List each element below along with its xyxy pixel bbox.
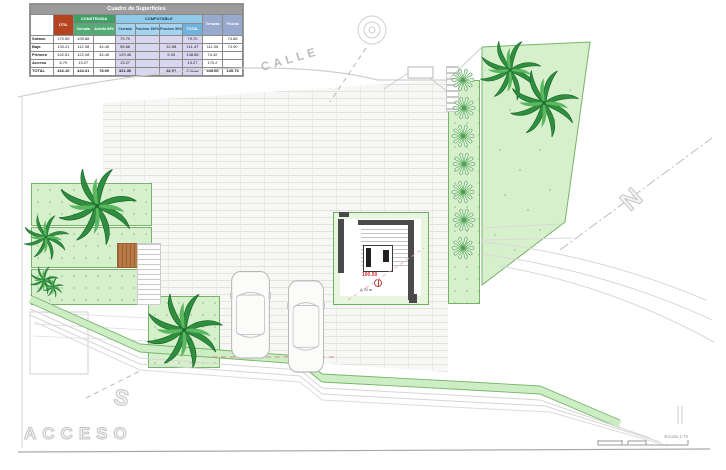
palm-planter-patch: [148, 296, 220, 368]
wall: [339, 212, 349, 217]
table-cell: [135, 60, 160, 68]
sub-header: Abierta 50%: [93, 24, 115, 36]
level-marker-icon: [374, 279, 382, 287]
table-cell: 79.70: [115, 36, 135, 44]
table-cell: 170.55: [53, 36, 73, 44]
table-cell: [93, 60, 115, 68]
row-label: Primera: [31, 52, 54, 60]
level-annotation: 100.50: [362, 272, 377, 278]
table-cell: 195.88: [73, 36, 93, 44]
core-wall: [383, 250, 389, 262]
scale-label: Escala 1:75: [664, 434, 688, 439]
col-header-terrazas: Terrazas: [202, 15, 222, 36]
table-cell: 416.10: [53, 68, 73, 76]
surface-table: Cuadro de Superficies ÚTIL CONSTRUIDA CO…: [30, 4, 243, 76]
wall: [338, 219, 344, 273]
table-cell: [135, 36, 160, 44]
table-cell: [135, 44, 160, 52]
col-header-util: ÚTIL: [53, 15, 73, 36]
table-cell: [135, 52, 160, 60]
table-cell: 74.32: [202, 52, 222, 60]
table-cell: 13.27: [183, 60, 203, 68]
wall: [358, 220, 411, 225]
table-cell: 170.2: [202, 60, 222, 68]
table-cell: 111.47: [183, 44, 203, 52]
table-cell: 9.43: [160, 52, 183, 60]
sub-header-total: TOTAL: [183, 24, 203, 36]
table-cell: 6.70: [53, 60, 73, 68]
table-cell: 44.45: [93, 44, 115, 52]
table-cell: 74.90: [223, 44, 243, 52]
table-cell: 321.30: [115, 68, 135, 76]
sub-header: Porches 100%: [135, 24, 160, 36]
table-row: Sótano170.55195.8879.7079.7074.86: [31, 36, 243, 44]
table-cell: 149.76: [223, 68, 243, 76]
table-cell: 129.45: [115, 52, 135, 60]
timber-deck: [117, 243, 139, 268]
row-label: Baja: [31, 44, 54, 52]
table-row: Primera102.51122.0834.45129.459.43138.88…: [31, 52, 243, 60]
sub-header: Cerrada: [115, 24, 135, 36]
table-cell: 13.27: [115, 60, 135, 68]
table-cell: 98.88: [115, 44, 135, 52]
table-cell: 112.08: [73, 44, 93, 52]
marker-letter-s: S: [111, 384, 131, 412]
table-cell: 355.60: [202, 68, 222, 76]
stairs-left: [137, 243, 161, 305]
row-label: Sótano: [31, 36, 54, 44]
table-cell: 34.45: [93, 52, 115, 60]
stairs-top: [446, 66, 459, 112]
row-label: TOTAL: [31, 68, 54, 76]
table-cell: [93, 36, 115, 44]
table-cell: 22.01: [160, 68, 183, 76]
table-row: TOTAL416.10443.3178.90321.3022.01343.323…: [31, 68, 243, 76]
label-box: [408, 67, 433, 78]
garden-strip-right: [448, 80, 480, 304]
site-plan-drawing: 100.50 4,70 m: [0, 0, 726, 470]
sub-header: Porches 50%: [160, 24, 183, 36]
table-cell: 74.86: [223, 36, 243, 44]
access-label: ACCESO: [24, 424, 133, 444]
table-cell: 111.08: [202, 44, 222, 52]
table-cell: 13.27: [73, 60, 93, 68]
table-cell: 12.58: [160, 44, 183, 52]
table-cell: 443.31: [73, 68, 93, 76]
table-cell: [135, 68, 160, 76]
core-wall: [366, 248, 371, 267]
table-cell: 78.90: [93, 68, 115, 76]
group-header-construida: CONSTRUIDA: [73, 15, 115, 24]
area-annotation: 4,70 m: [360, 287, 372, 292]
sub-header: Cerrada: [73, 24, 93, 36]
wall: [409, 294, 417, 303]
table-cell: [160, 60, 183, 68]
group-header-computable: COMPUTABLE: [115, 15, 202, 24]
table-row: Acceso6.7013.2713.2713.27170.2: [31, 60, 243, 68]
table-cell: [223, 52, 243, 60]
table-cell: 343.32: [183, 68, 203, 76]
table-cell: 133.21: [53, 44, 73, 52]
table-cell: [160, 36, 183, 44]
table-body: Sótano170.55195.8879.7079.7074.86Baja133…: [31, 36, 243, 76]
table-cell: 102.51: [53, 52, 73, 60]
garden-polygon-right: [482, 42, 590, 285]
planter-band-3: [31, 269, 152, 305]
table-cell: 79.70: [183, 36, 203, 44]
table-title: Cuadro de Superficies: [31, 5, 243, 15]
table-row: Baja133.21112.0844.4598.8812.58111.47111…: [31, 44, 243, 52]
street-label: CALLE: [259, 44, 321, 74]
wall: [408, 220, 414, 300]
scale-bar: [598, 440, 688, 445]
table-cell: 138.88: [183, 52, 203, 60]
marker-letter-n: N: [614, 182, 649, 218]
row-label: Acceso: [31, 60, 54, 68]
col-header-piscina: Piscina: [223, 15, 243, 36]
survey-point-icon: [358, 16, 386, 44]
table-corner-cell: [31, 15, 54, 36]
table-cell: [223, 60, 243, 68]
table-cell: 122.08: [73, 52, 93, 60]
planter-band-1: [31, 183, 152, 226]
table-cell: [202, 36, 222, 44]
